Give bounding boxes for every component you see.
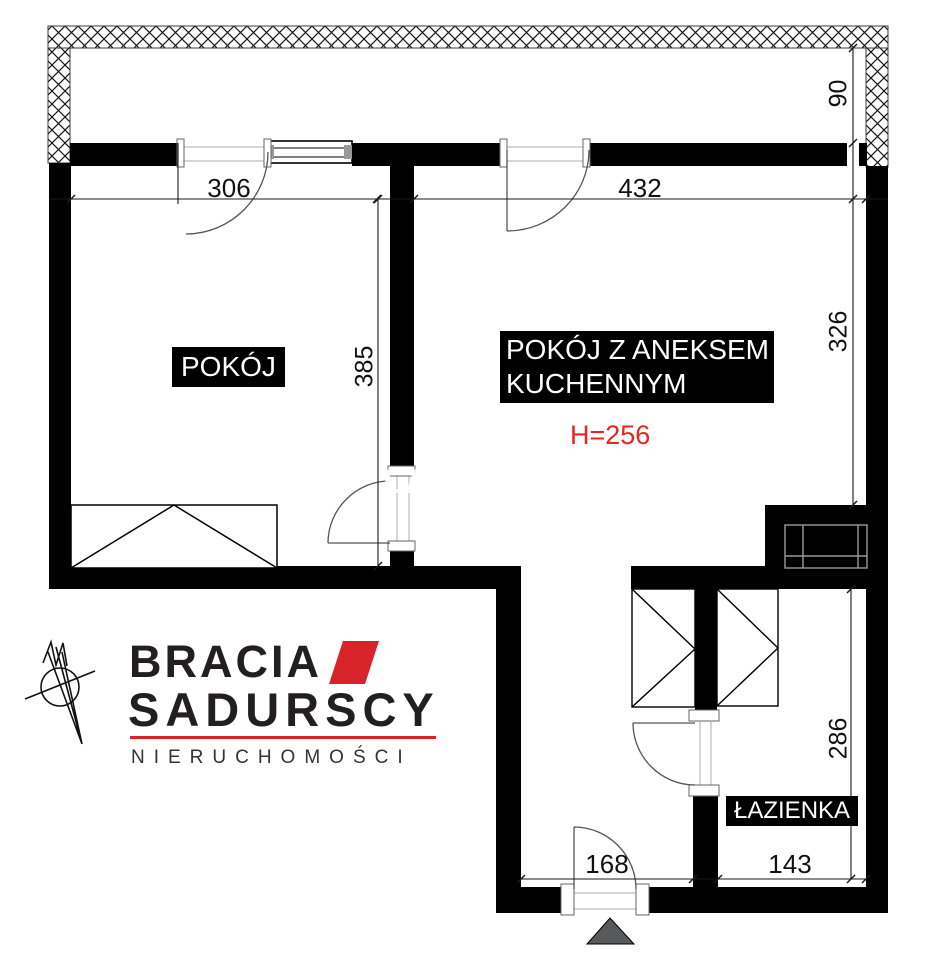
dim-pokoj-width: 306 bbox=[194, 173, 264, 204]
watermark-fragment: LA bbox=[383, 463, 430, 502]
bed-symbol bbox=[71, 505, 277, 568]
dim-kitchen-width: 432 bbox=[605, 173, 675, 204]
logo-line-nieruchomosci: NIERUCHOMOŚCI bbox=[131, 748, 412, 768]
dim-bathroom-depth: 286 bbox=[825, 704, 854, 774]
dim-pokoj-depth: 385 bbox=[351, 332, 380, 402]
room-label-kitchen-line2: KUCHENNYM bbox=[506, 367, 768, 401]
floor-plan-page: POKÓJ POKÓJ Z ANEKSEM KUCHENNYM H=256 ŁA… bbox=[0, 0, 926, 960]
logo-line-sadurscy: SADURSCY bbox=[128, 686, 440, 733]
window-symbol bbox=[266, 141, 352, 163]
logo-line-bracia: BRACIA bbox=[129, 639, 322, 684]
room-label-bathroom: ŁAZIENKA bbox=[726, 796, 858, 826]
room-label-kitchen: POKÓJ Z ANEKSEM KUCHENNYM bbox=[500, 331, 774, 403]
dim-bathroom-width: 143 bbox=[755, 849, 825, 880]
ceiling-height-note: H=256 bbox=[570, 420, 650, 451]
entrance-triangle-icon bbox=[587, 918, 634, 944]
dim-balcony-depth: 90 bbox=[825, 59, 854, 129]
logo-red-rule bbox=[130, 736, 436, 739]
dim-hall-width: 168 bbox=[572, 849, 642, 880]
north-arrow-icon bbox=[25, 642, 95, 744]
room-label-pokoj: POKÓJ bbox=[172, 347, 285, 387]
dim-kitchen-depth: 326 bbox=[825, 297, 854, 367]
room-label-kitchen-line1: POKÓJ Z ANEKSEM bbox=[506, 333, 768, 367]
